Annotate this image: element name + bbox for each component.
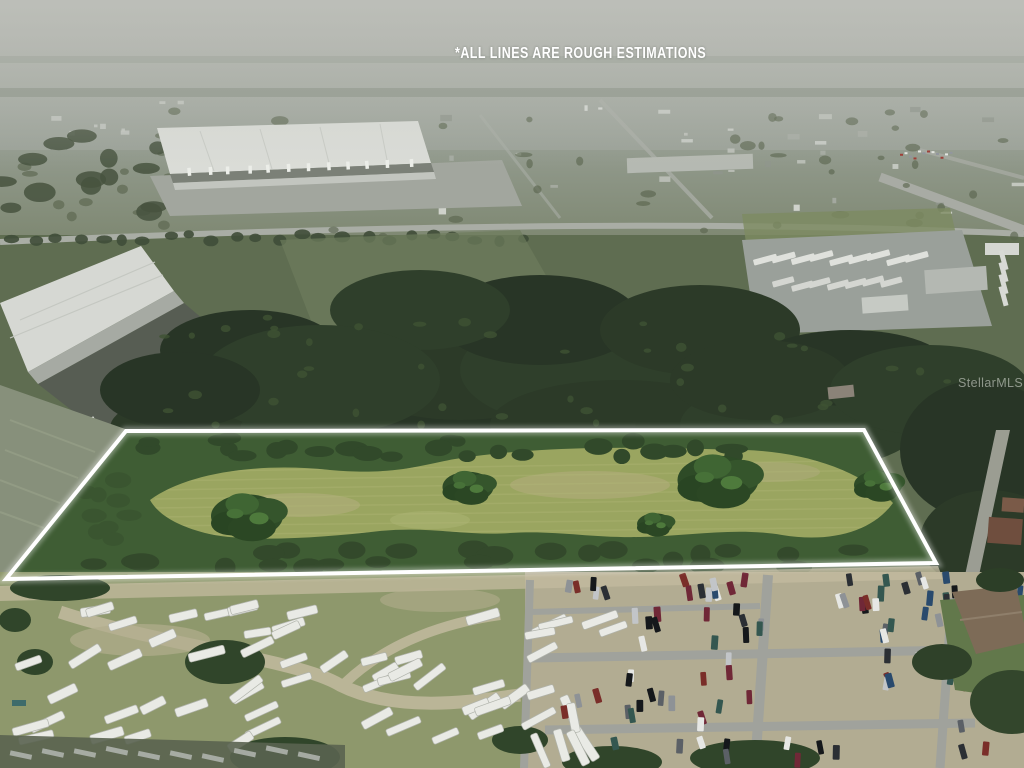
forest-crown [306,338,313,346]
car [704,607,710,621]
forest-crown [267,330,280,338]
forest-crown [458,318,471,327]
forest-crown [189,333,195,339]
roadside-tree [135,236,150,245]
car [743,627,750,643]
distant-building [713,171,723,174]
tree-clump [695,472,714,483]
parcel-tree [687,440,704,457]
tree-clump [470,484,484,493]
haze-overlay [0,0,1024,170]
forest-crown [580,407,592,414]
parcel-tree [425,440,452,456]
forest-crown [354,323,363,330]
parcel-tree [338,542,365,559]
roadside-tree [184,230,194,238]
forest-crown [916,367,924,375]
distant-tree [449,216,464,223]
forest-crown [801,345,808,351]
distant-tree [117,185,128,194]
property-parcel [6,430,936,579]
forest-crown [413,322,426,327]
tree-clump [656,522,666,528]
car [632,608,639,624]
parcel-tree [106,493,130,507]
parcel-tree [584,438,612,455]
forest-crown [676,343,687,352]
distant-tree [636,201,650,206]
forest-crown [438,403,446,411]
parcel-tree [613,449,630,464]
distant-tree [100,169,118,186]
distant-tree [533,185,541,193]
tree-clump [454,482,466,489]
parcel-tree [838,544,868,555]
parcel-tree [276,440,298,455]
parcel-tree [449,436,466,447]
forest-mass [100,352,260,428]
forest-crown [639,321,647,326]
roadside-tree [30,236,43,246]
parcel-tree [490,445,507,459]
parcel-tree [98,521,119,534]
forest-crown [818,404,829,410]
parcel-tree [81,558,107,569]
parcel-tree [535,543,567,560]
parcel-tree [777,547,799,562]
parcel-tree [139,437,160,447]
distant-tree [67,212,77,222]
distant-building [794,205,800,211]
distant-tree [969,190,977,198]
tree-clump [864,480,875,486]
car [833,745,840,760]
car [711,635,719,650]
forest-crown [943,379,951,383]
forest-crown [297,370,307,378]
forest-crown [159,334,170,338]
distant-tree [158,221,170,230]
tree-clump [249,512,268,524]
car [884,648,891,663]
distant-building [1012,183,1024,186]
parcel-tree [228,450,256,461]
parcel-tree [124,553,159,570]
car [590,577,597,591]
roadside-tree [203,235,218,246]
roadside-tree [231,232,243,242]
forest-crown [676,378,684,386]
forest-crown [644,349,652,353]
parcel-tree [578,545,601,562]
distant-tree [1010,231,1018,240]
forest-crown [718,404,726,412]
parcel-tree [90,487,106,502]
watermark-text: StellarMLS [958,376,1023,390]
forest-crown [353,409,360,418]
tree-clump [227,509,244,519]
distant-building [832,198,836,203]
distant-building [659,176,670,182]
distant-tree [22,171,38,177]
forest-crown [567,395,573,402]
roadside-tree [165,232,178,240]
parcel-tree [105,472,131,488]
car [746,690,752,704]
forest-crown [304,366,315,371]
distant-tree [0,203,21,213]
parcel-tree [380,451,403,461]
car [676,739,683,754]
car [756,621,762,636]
car [705,587,712,602]
car [668,695,675,711]
distant-building [550,185,558,188]
car [636,700,643,712]
roadside-tree [75,234,88,244]
parcel-tree [715,544,741,558]
forest-crown [268,398,278,406]
distant-tree [640,190,656,197]
forest-crown [787,344,798,348]
forest-crown [886,366,899,372]
car [733,603,740,616]
parcel-tree [253,545,285,561]
parcel-tree [103,532,124,546]
roadside-tree [4,235,19,243]
distant-building [439,208,446,215]
parcel-tree [365,556,390,568]
forest-crown [270,326,278,331]
forest-crown [263,315,273,321]
aerial-photo-canvas [0,0,1024,768]
forest-crown [188,390,202,399]
parcel-tree [116,510,141,521]
forest-crown [771,415,783,424]
parcel-tree [598,541,628,559]
tree-clump [645,520,653,525]
parcel-tree [385,543,417,558]
roadside-tree [117,234,127,246]
forest-crown [221,325,231,332]
distant-tree [136,203,162,221]
car [697,717,704,731]
forest-crown [484,331,497,338]
distant-tree [79,198,93,206]
car [700,672,707,686]
car [726,665,733,680]
distant-tree [24,183,56,202]
distant-tree [903,183,910,188]
disclaimer-text: *ALL LINES ARE ROUGH ESTIMATIONS [455,45,706,63]
parcel-tree [659,445,686,458]
distant-tree [53,200,64,209]
parcel-tree [82,509,106,523]
parcel-tree [305,446,334,457]
parcel-tree [459,450,476,462]
car [872,598,879,611]
forest-crown [496,413,508,420]
car [926,590,934,606]
forest-crown [418,364,424,370]
tree-clump [721,476,743,490]
roadside-tree [48,234,61,244]
distant-tree [328,227,338,234]
forest-crown [774,332,785,341]
aerial-photo: *ALL LINES ARE ROUGH ESTIMATIONS Stellar… [0,0,1024,768]
parcel-tree [353,446,383,461]
roadside-tree [249,234,261,243]
forest-crown [593,419,599,426]
forest-crown [681,364,694,372]
forest-crown [163,408,174,413]
roadside-tree [294,229,310,239]
parcel-tree [512,449,534,461]
car [645,616,653,630]
foreground-tree [0,608,31,632]
car [982,741,990,756]
distant-tree [700,228,708,234]
parcel-tree [622,433,645,450]
car [794,753,801,768]
forest-crown [560,350,570,354]
distant-building [728,170,734,172]
roadside-tree [96,235,112,243]
